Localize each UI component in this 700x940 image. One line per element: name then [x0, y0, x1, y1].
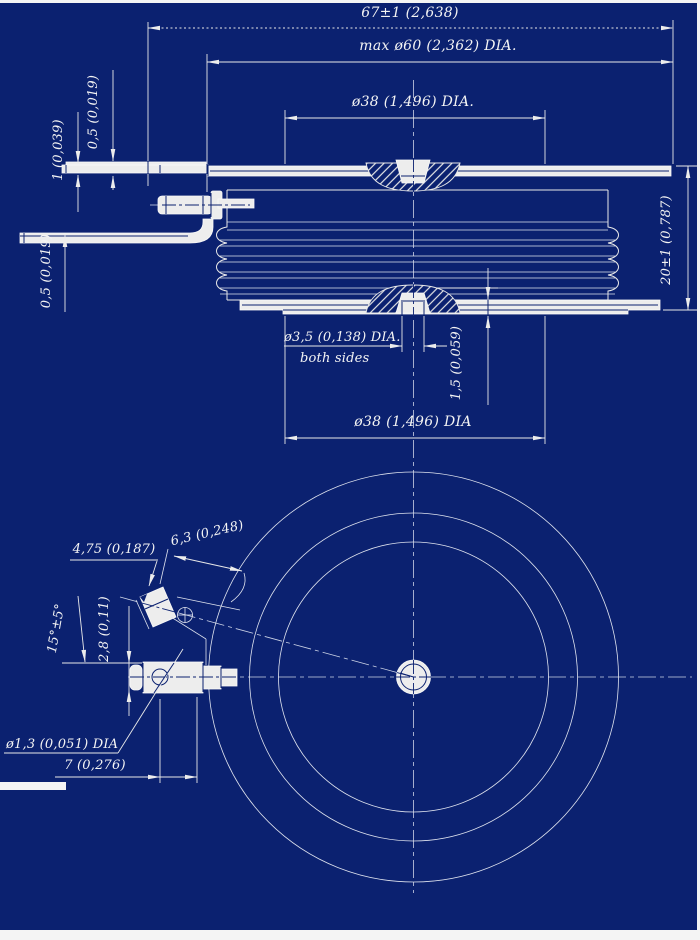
engineering-drawing: 67±1 (2,638) max ø60 (2,362) DIA. ø38 (1…	[0, 0, 700, 940]
gate-pin	[218, 199, 254, 208]
dim-tip-distance: 7 (0,276)	[64, 758, 126, 773]
note-gate-hole: both sides	[300, 351, 370, 366]
dim-hole-diameter: ø1,3 (0,051) DIA	[5, 737, 118, 752]
dim-strip-thickness: 0,5 (0,019)	[39, 234, 54, 308]
flex-sheet	[66, 162, 206, 165]
dim-lead-thickness: 1 (0,039)	[51, 119, 66, 181]
dim-sheet-thickness: 0,5 (0,019)	[86, 75, 101, 149]
dim-boss-height: 1,5 (0,059)	[449, 326, 464, 400]
gate-pad-bottom	[396, 293, 430, 313]
top-lead	[62, 165, 208, 173]
blueprint-page: 67±1 (2,638) max ø60 (2,362) DIA. ø38 (1…	[0, 0, 700, 940]
dim-lug-width: 4,75 (0,187)	[72, 542, 156, 557]
dim-height: 20±1 (0,787)	[659, 195, 674, 286]
dim-lead-offset: 2,8 (0,11)	[97, 596, 112, 663]
gate-pad-top	[396, 160, 430, 183]
dim-gate-hole: ø3,5 (0,138) DIA.	[283, 330, 401, 345]
dim-pole-diameter-top: ø38 (1,496) DIA.	[351, 94, 474, 110]
dim-overall-width: 67±1 (2,638)	[361, 5, 459, 21]
drawing-background	[0, 0, 700, 940]
dim-max-diameter: max ø60 (2,362) DIA.	[359, 38, 516, 54]
gate-connector-bottom	[130, 662, 237, 693]
dim-pole-diameter-bottom: ø38 (1,496) DIA	[353, 414, 472, 430]
